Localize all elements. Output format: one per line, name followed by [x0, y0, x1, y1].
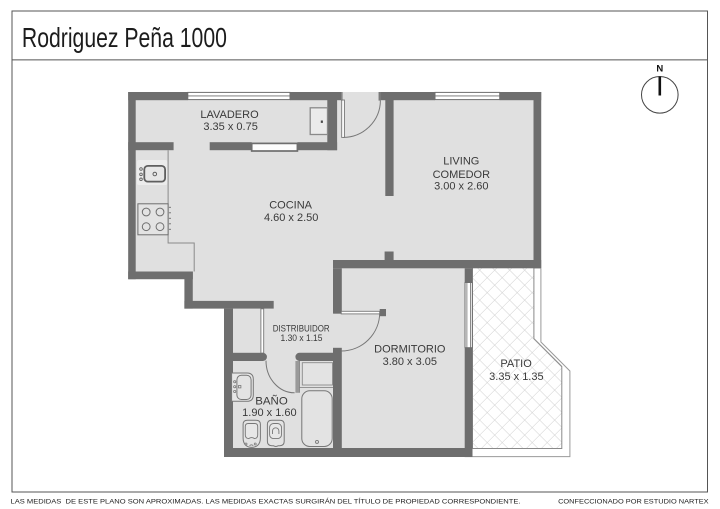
svg-text:DISTRIBUIDOR: DISTRIBUIDOR [273, 323, 330, 333]
svg-text:BAÑO: BAÑO [255, 395, 288, 408]
svg-text:4.60 x 2.50: 4.60 x 2.50 [264, 212, 318, 224]
svg-text:COMEDOR: COMEDOR [433, 169, 491, 181]
svg-text:3.00 x 2.60: 3.00 x 2.60 [434, 181, 488, 193]
svg-text:LAVADERO: LAVADERO [200, 109, 259, 121]
svg-text:1.90 x 1.60: 1.90 x 1.60 [242, 407, 296, 419]
svg-text:3.80 x 3.05: 3.80 x 3.05 [383, 356, 437, 368]
svg-text:3.35 x 0.75: 3.35 x 0.75 [203, 121, 257, 133]
svg-text:1.30 x 1.15: 1.30 x 1.15 [281, 333, 323, 343]
svg-text:COCINA: COCINA [269, 199, 312, 211]
svg-text:LAS MEDIDAS DE ESTE PLANO SON: LAS MEDIDAS DE ESTE PLANO SON APROXIMADA… [11, 497, 521, 506]
svg-text:Rodriguez Peña 1000: Rodriguez Peña 1000 [22, 22, 227, 53]
svg-text:LIVING: LIVING [443, 156, 479, 168]
svg-text:DORMITORIO: DORMITORIO [374, 344, 446, 356]
svg-text:3.35 x 1.35: 3.35 x 1.35 [489, 371, 543, 383]
svg-text:PATIO: PATIO [500, 358, 532, 370]
svg-text:CONFECCIONADO POR ESTUDIO NART: CONFECCIONADO POR ESTUDIO NARTEX [558, 499, 709, 506]
svg-text:N: N [656, 64, 663, 75]
